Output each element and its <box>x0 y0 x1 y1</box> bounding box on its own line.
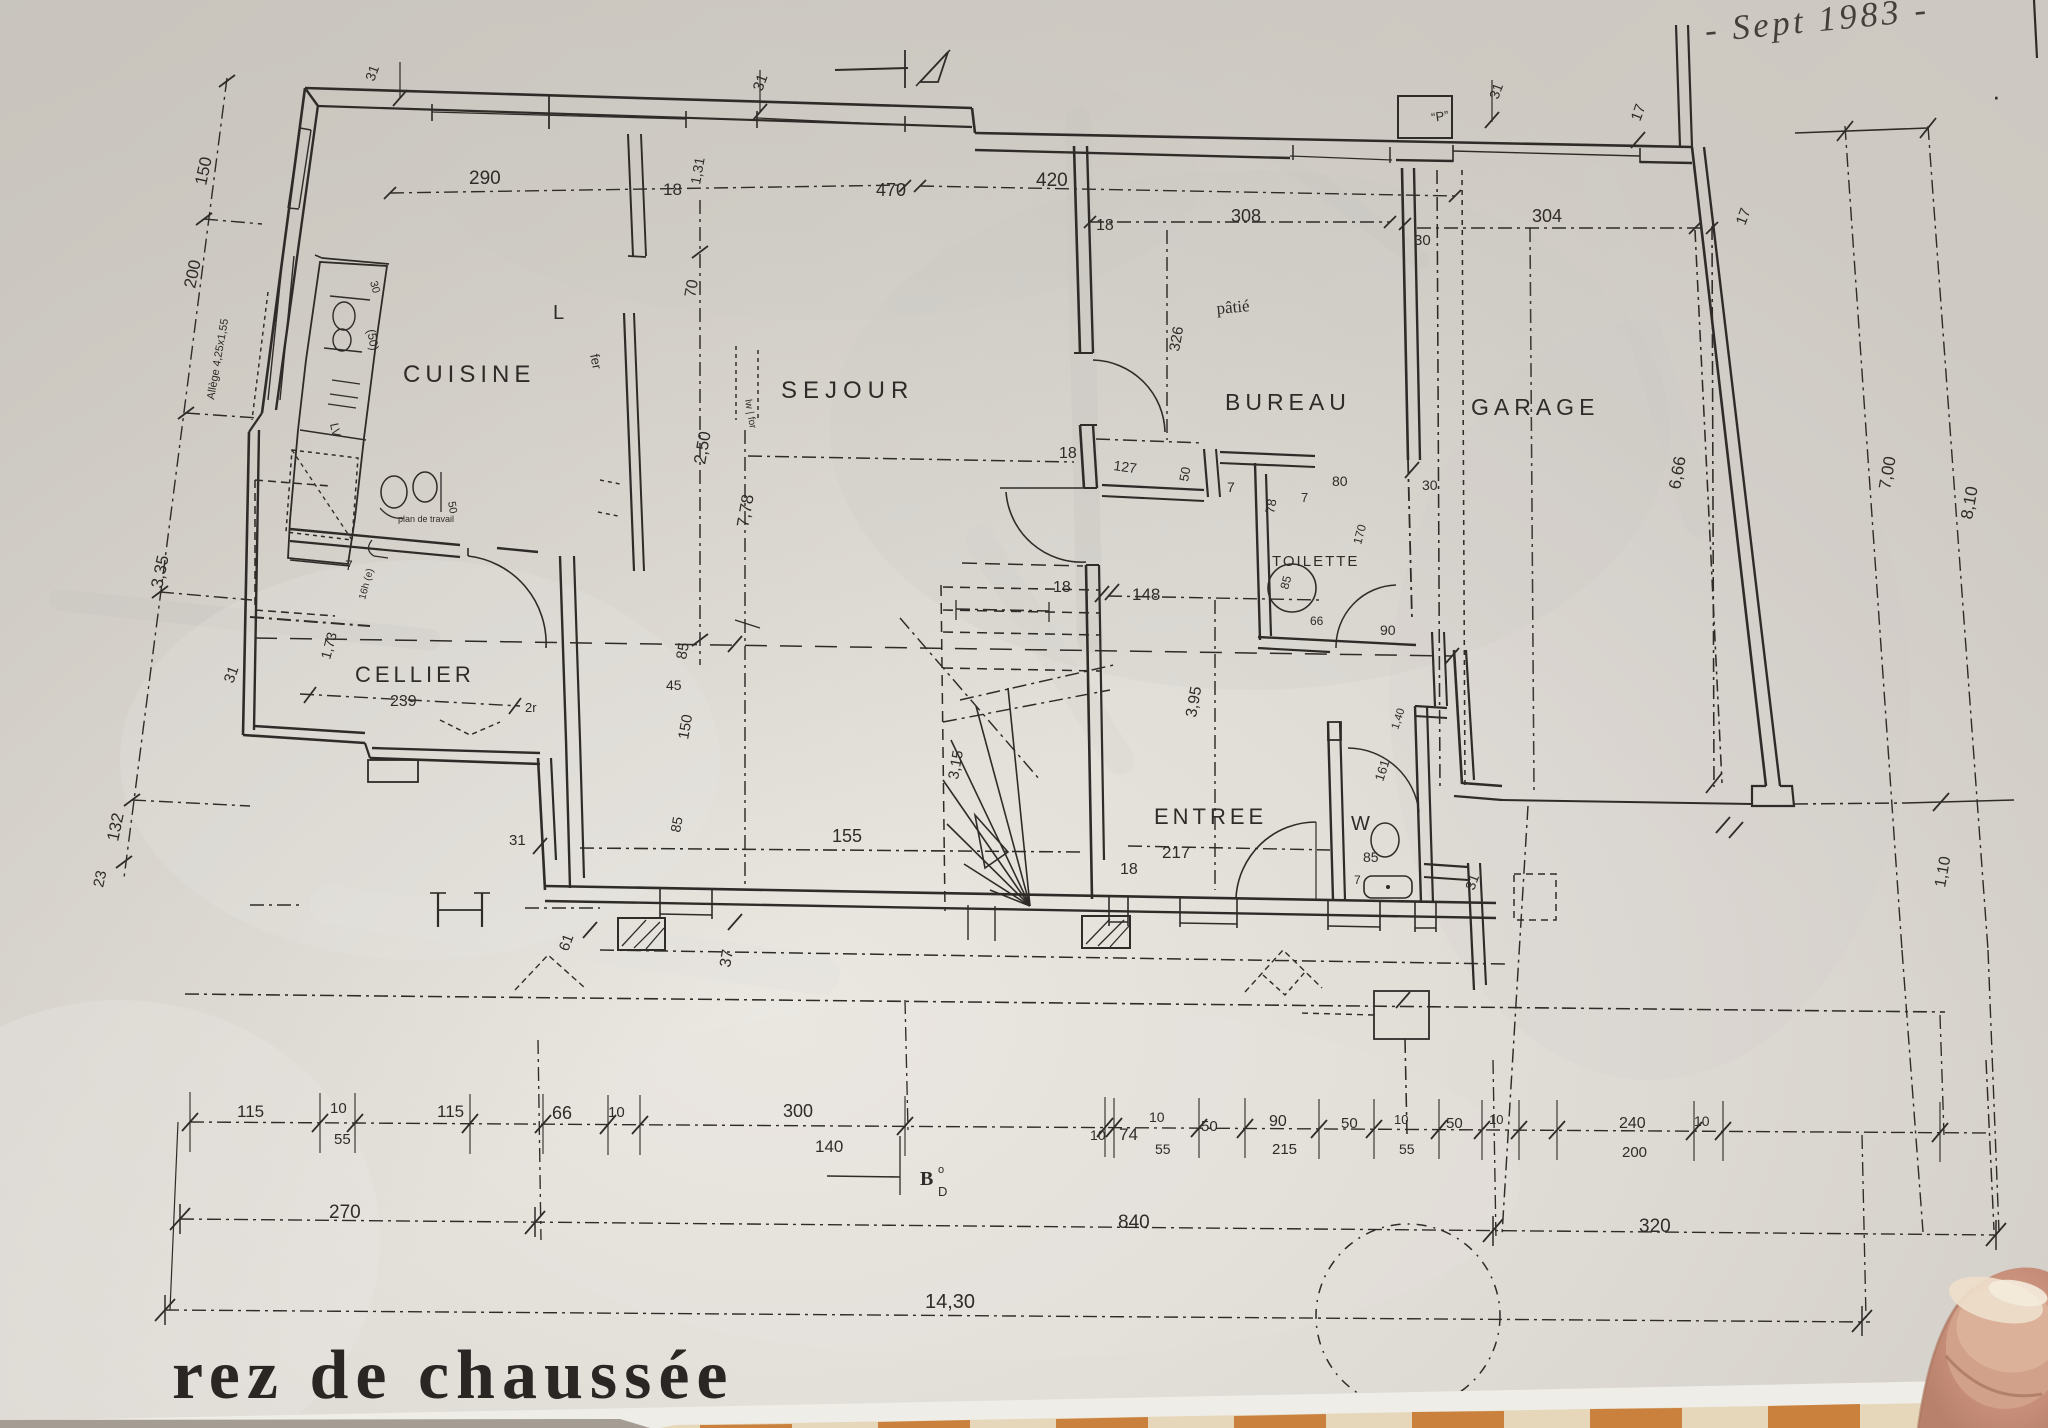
svg-text:18: 18 <box>663 180 682 199</box>
svg-text:W: W <box>1351 813 1370 835</box>
svg-text:45: 45 <box>666 677 682 693</box>
svg-text:290: 290 <box>469 168 501 189</box>
svg-text:70: 70 <box>682 278 702 299</box>
svg-text:7: 7 <box>1227 479 1235 495</box>
svg-text:140: 140 <box>815 1137 843 1156</box>
svg-text:80: 80 <box>1332 473 1348 489</box>
svg-text:90: 90 <box>1380 622 1396 638</box>
svg-text:23: 23 <box>90 869 110 889</box>
svg-text:320: 320 <box>1639 1216 1671 1237</box>
svg-text:·: · <box>1992 81 2001 111</box>
svg-text:420: 420 <box>1036 170 1068 191</box>
svg-text:D: D <box>938 1184 947 1199</box>
svg-text:55: 55 <box>1399 1141 1415 1157</box>
svg-text:10: 10 <box>1394 1112 1408 1127</box>
svg-text:85: 85 <box>1363 849 1379 865</box>
svg-text:304: 304 <box>1532 206 1562 226</box>
svg-text:10: 10 <box>1489 1112 1503 1127</box>
svg-text:215: 215 <box>1272 1141 1297 1158</box>
svg-text:85: 85 <box>667 815 685 833</box>
svg-text:BUREAU: BUREAU <box>1225 389 1351 415</box>
svg-text:30: 30 <box>1414 232 1431 249</box>
svg-text:55: 55 <box>334 1131 351 1148</box>
svg-text:200: 200 <box>1622 1144 1647 1161</box>
svg-text:239: 239 <box>390 693 417 710</box>
svg-text:CUISINE: CUISINE <box>403 361 535 388</box>
svg-text:55: 55 <box>1155 1141 1171 1157</box>
svg-text:217: 217 <box>1162 843 1190 862</box>
svg-text:66: 66 <box>1310 614 1324 628</box>
svg-text:10: 10 <box>1090 1127 1106 1143</box>
svg-text:rez de chaussée: rez de chaussée <box>172 1337 735 1414</box>
svg-text:840: 840 <box>1118 1212 1150 1233</box>
svg-text:o: o <box>938 1164 944 1176</box>
svg-text:SEJOUR: SEJOUR <box>781 377 914 404</box>
svg-text:270: 270 <box>329 1202 361 1223</box>
svg-text:7: 7 <box>1301 490 1308 505</box>
svg-text:155: 155 <box>832 826 862 846</box>
svg-text:148: 148 <box>1132 585 1160 604</box>
svg-text:85: 85 <box>673 641 693 660</box>
svg-text:50: 50 <box>1201 1118 1218 1135</box>
svg-text:308: 308 <box>1231 206 1261 226</box>
svg-text:74: 74 <box>1119 1125 1138 1144</box>
svg-text:31: 31 <box>509 832 526 849</box>
svg-text:50: 50 <box>445 500 459 514</box>
svg-text:L: L <box>553 302 564 324</box>
svg-text:240: 240 <box>1619 1115 1646 1132</box>
svg-text:115: 115 <box>237 1102 264 1121</box>
svg-text:470: 470 <box>876 180 906 200</box>
svg-text:plan de travail: plan de travail <box>398 514 454 524</box>
svg-text:18: 18 <box>1120 861 1138 878</box>
svg-text:18: 18 <box>1059 445 1077 462</box>
svg-text:GARAGE: GARAGE <box>1471 394 1599 420</box>
svg-text:10: 10 <box>330 1100 347 1117</box>
svg-text:“P”: “P” <box>1430 108 1449 125</box>
svg-text:115: 115 <box>437 1102 464 1121</box>
svg-text:50: 50 <box>1446 1115 1463 1132</box>
svg-text:7: 7 <box>1354 873 1361 887</box>
svg-text:30: 30 <box>1422 477 1438 493</box>
svg-text:18: 18 <box>1053 579 1071 596</box>
svg-text:10: 10 <box>608 1104 625 1121</box>
svg-text:50: 50 <box>1341 1115 1358 1132</box>
svg-text:ENTREE: ENTREE <box>1154 804 1267 829</box>
svg-text:pâtié: pâtié <box>1216 296 1251 318</box>
svg-text:50: 50 <box>1176 466 1193 483</box>
svg-text:14,30: 14,30 <box>925 1291 975 1313</box>
svg-text:90: 90 <box>1269 1113 1287 1130</box>
svg-text:10: 10 <box>1149 1109 1165 1125</box>
svg-text:78: 78 <box>1262 498 1279 515</box>
svg-text:TOILETTE: TOILETTE <box>1272 553 1359 570</box>
svg-text:7: 7 <box>345 557 353 573</box>
svg-text:66: 66 <box>552 1103 572 1123</box>
svg-text:300: 300 <box>783 1101 813 1121</box>
svg-text:127: 127 <box>1113 457 1139 476</box>
svg-text:CELLIER: CELLIER <box>355 662 475 687</box>
svg-text:2r: 2r <box>525 700 537 715</box>
svg-text:18: 18 <box>1096 217 1114 234</box>
svg-text:B: B <box>920 1168 933 1190</box>
svg-text:10: 10 <box>1694 1113 1710 1129</box>
